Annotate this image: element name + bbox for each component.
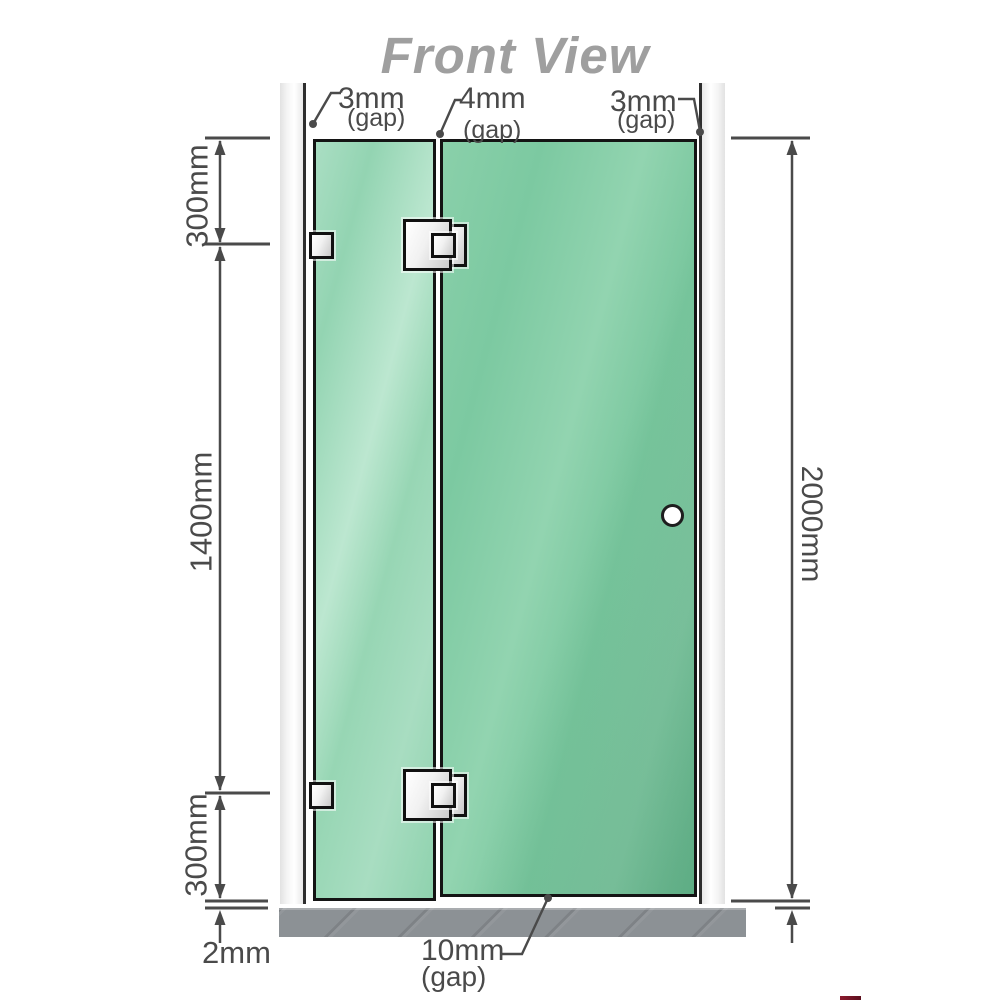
diagram-canvas: Front View [0, 0, 1000, 1000]
watermark-fragment [840, 996, 861, 1000]
gap-label-bottom-note: (gap) [421, 963, 486, 991]
leader-dots [309, 120, 704, 902]
dim-label-right-height: 2000mm [796, 466, 826, 583]
dim-label-left-bottom: 300mm [181, 793, 212, 896]
dim-label-floor-gap: 2mm [202, 937, 271, 968]
dim-label-left-top: 300mm [182, 144, 213, 247]
gap-label-top-middle-note: (gap) [463, 118, 521, 143]
gap-label-top-right-note: (gap) [617, 108, 675, 133]
gap-label-top-middle-value: 4mm [459, 84, 526, 114]
leader-lines [313, 93, 700, 954]
gap-label-top-left-note: (gap) [347, 106, 405, 131]
dimension-lines-layer [0, 0, 1000, 1000]
dim-label-left-middle: 1400mm [186, 452, 217, 573]
